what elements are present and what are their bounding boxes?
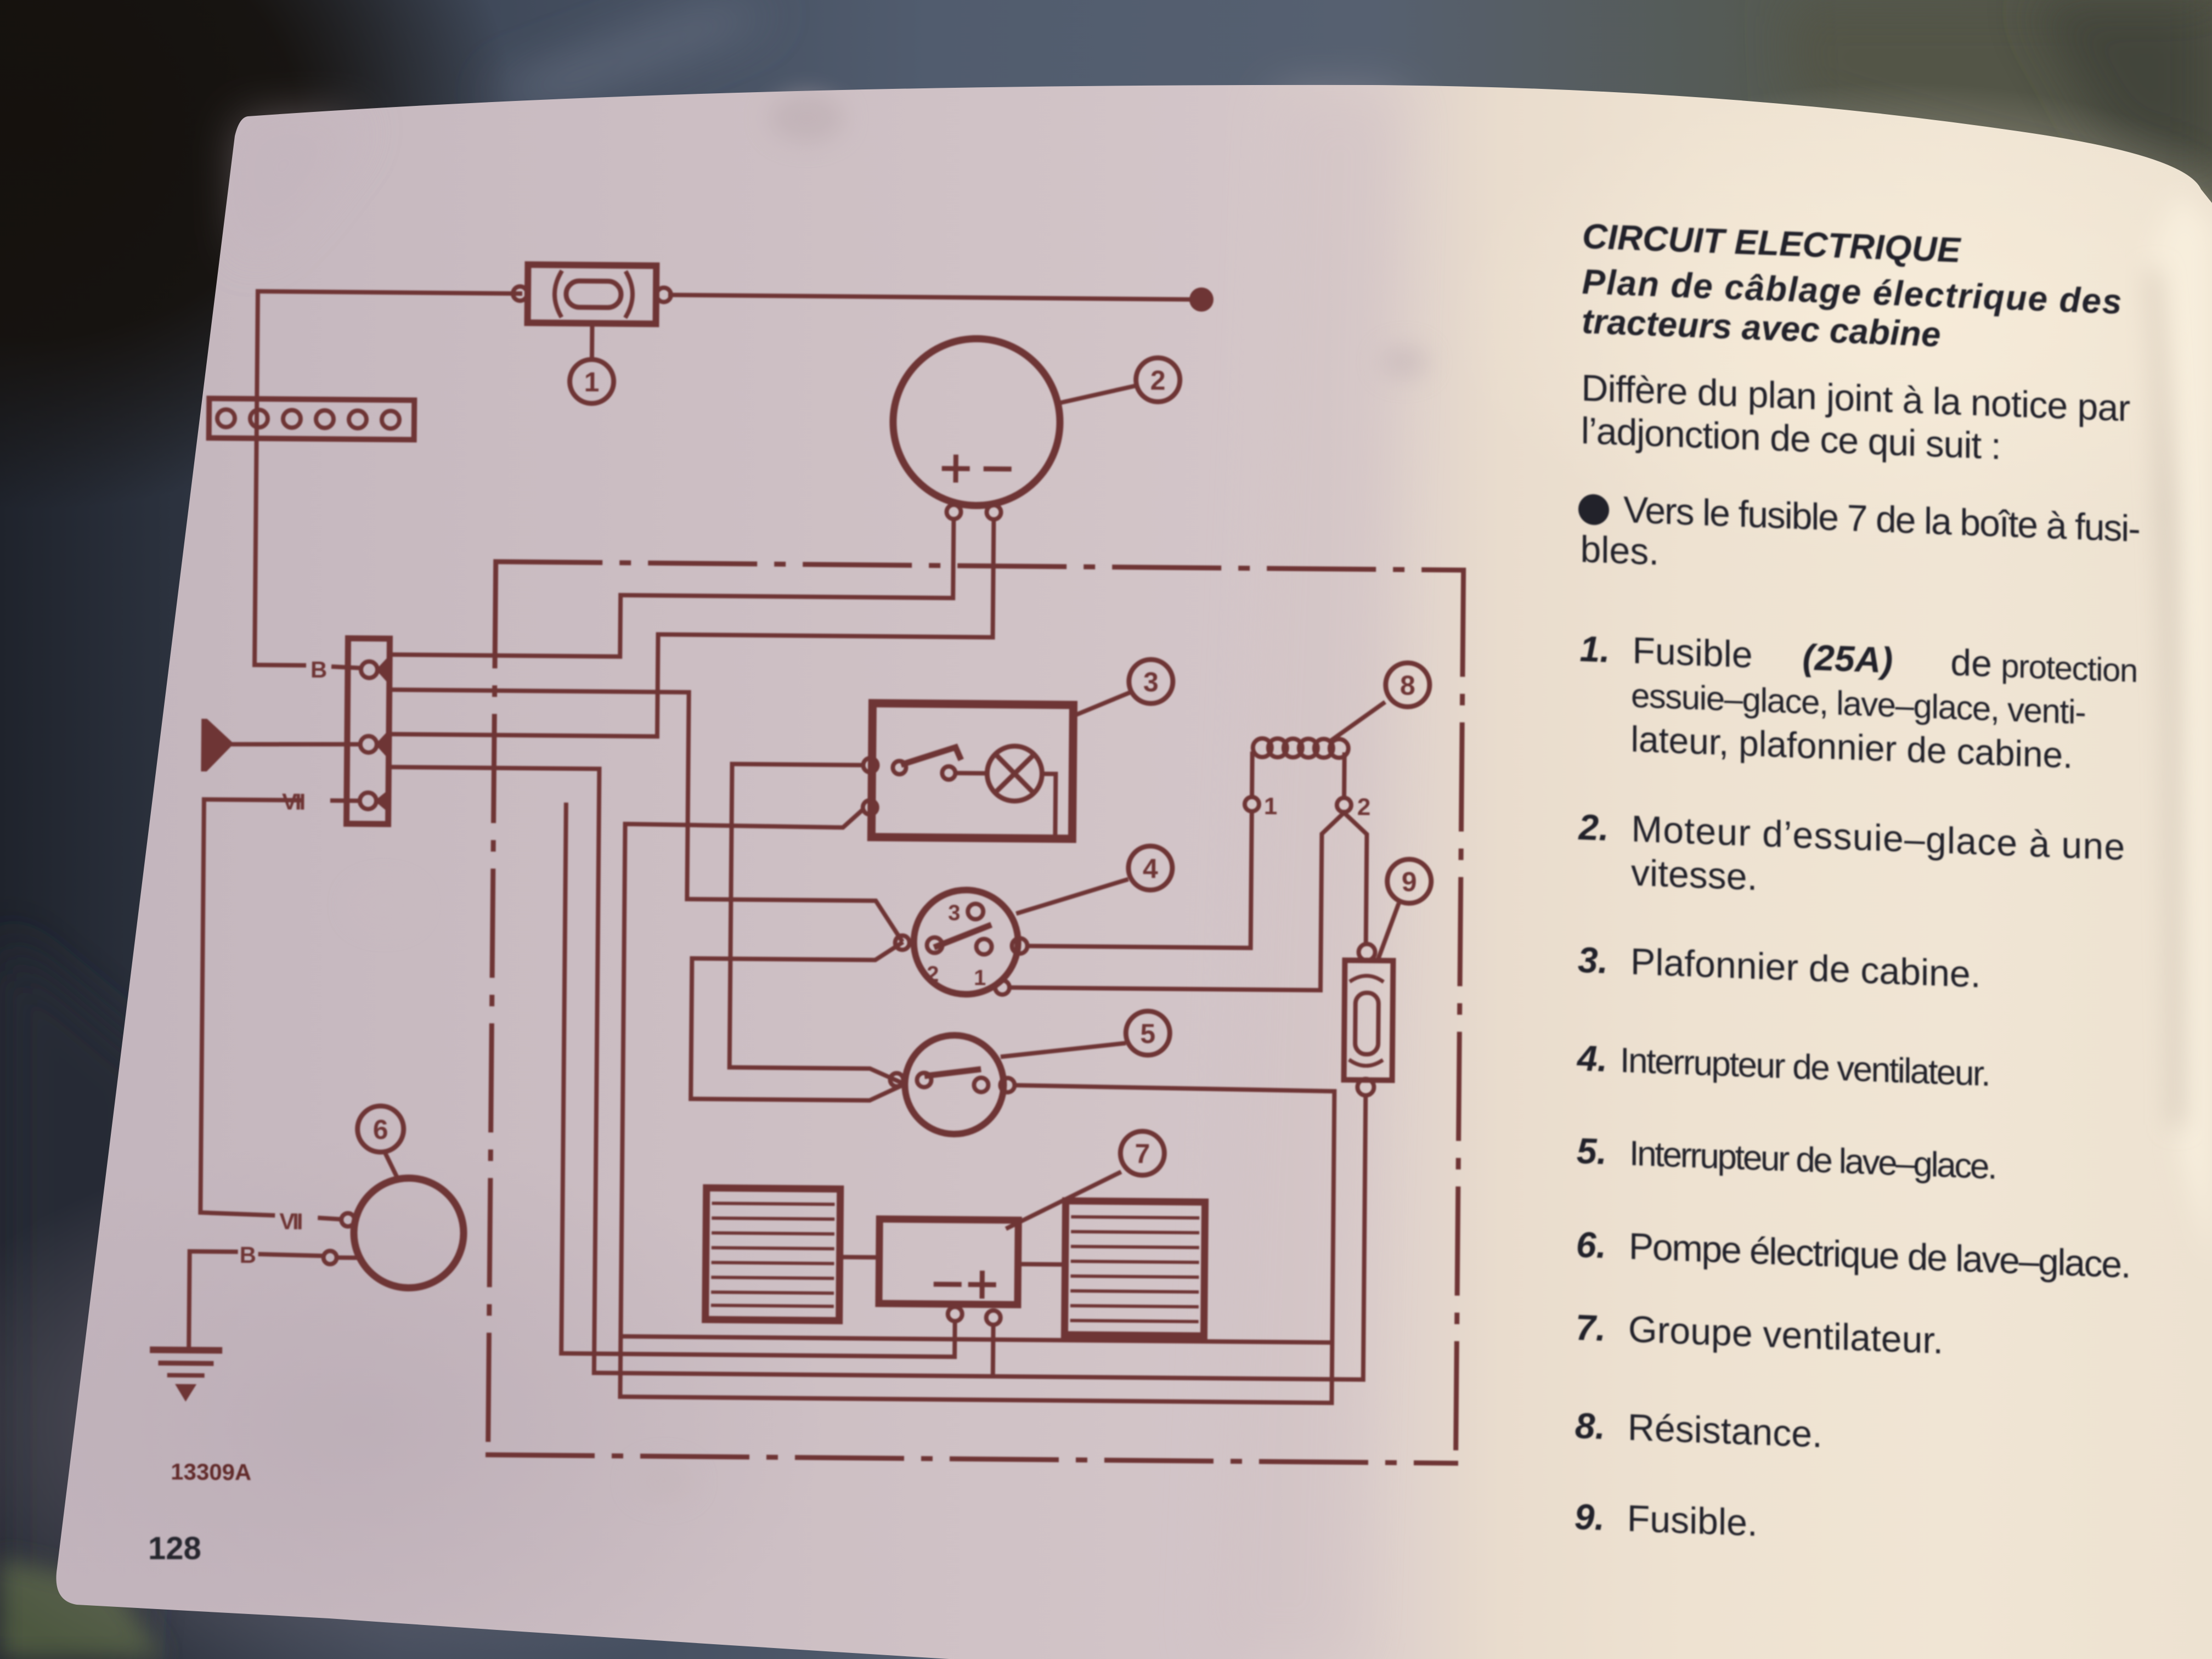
svg-text:2: 2 (1150, 365, 1165, 396)
svg-text:de: de (1950, 641, 1992, 685)
svg-text:4.: 4. (1576, 1037, 1607, 1079)
svg-text:128: 128 (148, 1531, 201, 1566)
svg-text:6.: 6. (1576, 1224, 1606, 1266)
svg-text:5: 5 (1140, 1018, 1155, 1049)
svg-text:1: 1 (1264, 793, 1278, 820)
svg-text:B: B (239, 1242, 256, 1268)
svg-text:9.: 9. (1575, 1496, 1605, 1538)
svg-text:8: 8 (1400, 670, 1415, 701)
svg-text:2: 2 (1357, 794, 1371, 821)
svg-text:VII: VII (279, 1208, 302, 1234)
svg-text:7: 7 (1135, 1138, 1150, 1169)
svg-text:1: 1 (584, 366, 599, 397)
svg-text:(25A): (25A) (1802, 636, 1893, 680)
svg-text:3: 3 (1143, 667, 1159, 697)
svg-text:Fusible.: Fusible. (1627, 1498, 1758, 1544)
svg-text:vitesse.: vitesse. (1631, 852, 1758, 899)
svg-text:1: 1 (974, 966, 986, 990)
svg-text:2: 2 (927, 962, 939, 986)
svg-text:2.: 2. (1577, 806, 1609, 848)
svg-text:3: 3 (948, 901, 961, 925)
svg-text:bles.: bles. (1580, 528, 1659, 573)
svg-text:7.: 7. (1576, 1307, 1606, 1348)
svg-text:9: 9 (1402, 866, 1417, 897)
svg-text:B: B (311, 657, 328, 682)
svg-text:1.: 1. (1579, 628, 1610, 670)
svg-text:5.: 5. (1577, 1130, 1607, 1172)
svg-text:8.: 8. (1575, 1405, 1605, 1447)
svg-text:protection: protection (2001, 647, 2138, 689)
svg-text:VII: VII (282, 788, 304, 814)
svg-text:13309A: 13309A (171, 1459, 252, 1485)
svg-text:4: 4 (1143, 853, 1158, 884)
svg-text:3.: 3. (1578, 939, 1608, 981)
svg-text:Fusible: Fusible (1632, 630, 1753, 676)
svg-text:Résistance.: Résistance. (1628, 1407, 1823, 1455)
svg-text:6: 6 (373, 1114, 388, 1145)
